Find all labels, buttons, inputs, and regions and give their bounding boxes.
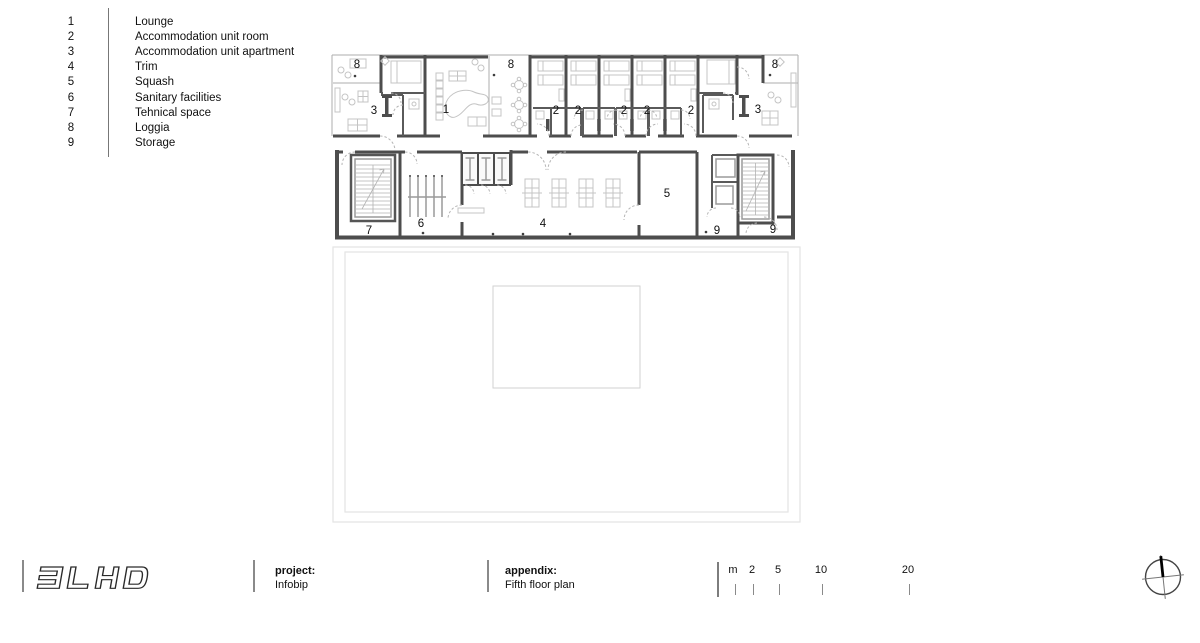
titleblock-divider	[22, 560, 24, 592]
legend-row: 3Accommodation unit apartment	[55, 44, 294, 59]
scale-label: 10	[815, 564, 827, 576]
titleblock-divider	[487, 560, 489, 592]
north-arrow-icon	[1138, 553, 1188, 608]
appendix-value: Fifth floor plan	[505, 579, 575, 591]
floor-plan-drawing: 8 3 1 8 2 2 2 2 2 3 8 7 6 4 5 9 9	[325, 45, 805, 532]
legend-row: 9Storage	[55, 136, 294, 151]
legend-number: 6	[55, 92, 87, 104]
legend-number: 1	[55, 16, 87, 28]
room-label: 8	[508, 59, 514, 71]
legend-label: Storage	[87, 137, 175, 149]
legend-divider-line	[108, 8, 109, 157]
scale-tick	[779, 584, 780, 595]
project-block: project: Infobip	[275, 564, 315, 592]
legend-label: Lounge	[87, 16, 173, 28]
scale-tick	[753, 584, 754, 595]
legend-label: Accommodation unit apartment	[87, 46, 294, 58]
room-label: 3	[371, 105, 377, 117]
room-label: 1	[443, 104, 449, 116]
room-label: 2	[688, 105, 694, 117]
appendix-label: appendix:	[505, 565, 557, 577]
stairs-left	[351, 155, 395, 221]
legend-row: 7Tehnical space	[55, 105, 294, 120]
legend-row: 6Sanitary facilities	[55, 90, 294, 105]
logo-3lhd	[33, 563, 157, 598]
room-label: 3	[755, 104, 761, 116]
room-label: 2	[621, 105, 627, 117]
scale-label: 5	[775, 564, 781, 576]
legend-row: 5Squash	[55, 75, 294, 90]
legend-number: 3	[55, 46, 87, 58]
legend-label: Loggia	[87, 122, 170, 134]
legend-number: 9	[55, 137, 87, 149]
room-label: 2	[575, 105, 581, 117]
room-label: 6	[418, 218, 424, 230]
scale-tick	[822, 584, 823, 595]
room-label: 2	[553, 105, 559, 117]
legend-number: 8	[55, 122, 87, 134]
room-label: 9	[714, 225, 720, 237]
room-label: 5	[664, 188, 670, 200]
legend-row: 2Accommodation unit room	[55, 29, 294, 44]
stairs-right	[738, 155, 773, 223]
floor-dots	[354, 74, 772, 236]
scale-zero-line	[717, 562, 719, 597]
room-label: 8	[772, 59, 778, 71]
legend-label: Trim	[87, 61, 158, 73]
legend-row: 4Trim	[55, 60, 294, 75]
room-label: 7	[366, 225, 372, 237]
room-label: 4	[540, 218, 547, 230]
legend-label: Squash	[87, 76, 174, 88]
scale-label: 20	[902, 564, 914, 576]
legend: 1Lounge 2Accommodation unit room 3Accomm…	[55, 14, 294, 151]
toilet-partitions	[408, 175, 446, 217]
legend-number: 5	[55, 76, 87, 88]
legend-number: 2	[55, 31, 87, 43]
terrace-outline	[333, 247, 800, 522]
appendix-block: appendix: Fifth floor plan	[505, 564, 575, 592]
legend-label: Accommodation unit room	[87, 31, 269, 43]
legend-row: 1Lounge	[55, 14, 294, 29]
room-label: 2	[644, 105, 650, 117]
scale-label: 2	[749, 564, 755, 576]
project-label: project:	[275, 565, 315, 577]
project-value: Infobip	[275, 579, 308, 591]
legend-row: 8Loggia	[55, 120, 294, 135]
room-label: 8	[354, 59, 360, 71]
room-label: 9	[770, 224, 776, 236]
scale-tick	[909, 584, 910, 595]
legend-label: Tehnical space	[87, 107, 211, 119]
elevator-bank	[462, 153, 510, 185]
scale-tick	[735, 584, 736, 595]
legend-number: 4	[55, 61, 87, 73]
drawing-sheet: 1Lounge 2Accommodation unit room 3Accomm…	[0, 0, 1200, 643]
scale-label: m	[728, 564, 737, 576]
titleblock-divider	[253, 560, 255, 592]
legend-number: 7	[55, 107, 87, 119]
